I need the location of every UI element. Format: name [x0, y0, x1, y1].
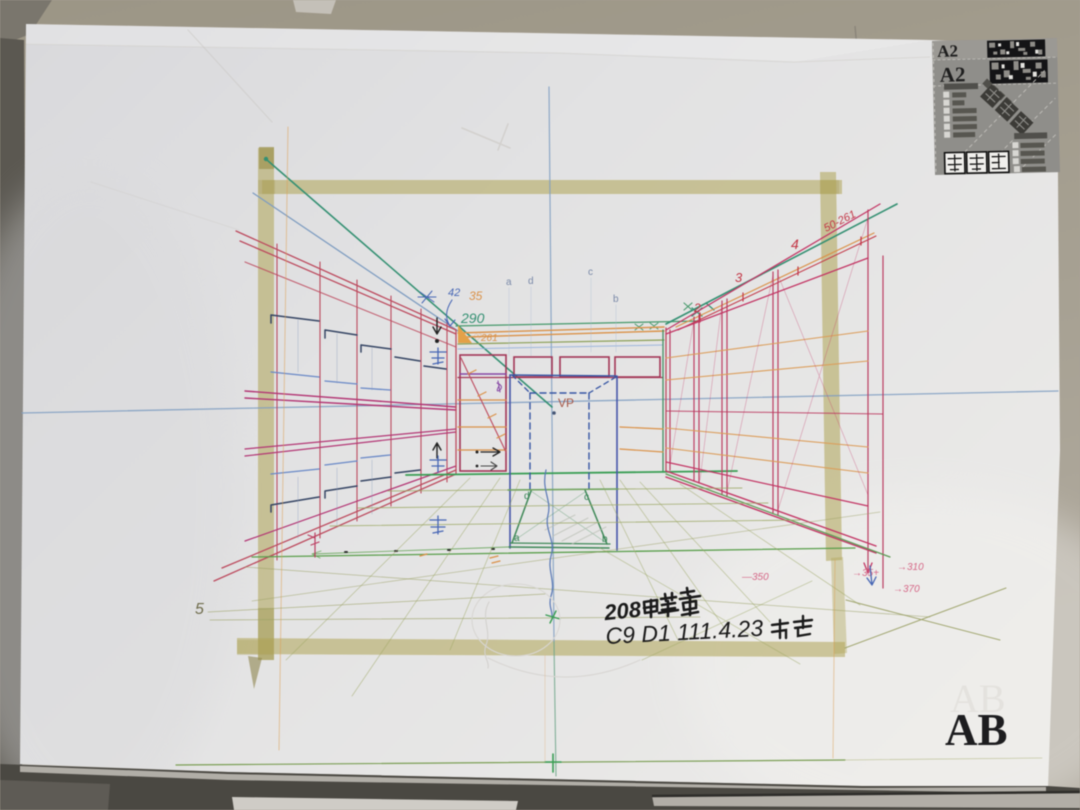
svg-text:→370: →370 [893, 584, 920, 595]
svg-text:→35+: →35+ [852, 568, 879, 579]
svg-text:b: b [613, 294, 619, 305]
svg-text:a: a [514, 533, 520, 544]
svg-text:d: d [524, 491, 530, 502]
svg-text:42: 42 [448, 287, 460, 299]
svg-text:VP: VP [558, 396, 574, 410]
svg-text:3: 3 [735, 270, 743, 285]
svg-text:a: a [506, 277, 512, 288]
svg-text:c: c [584, 492, 589, 503]
svg-text:b: b [602, 534, 608, 545]
svg-text:A2: A2 [937, 41, 958, 60]
svg-text:d: d [528, 276, 534, 287]
svg-text:c: c [588, 267, 593, 278]
svg-text:→310: →310 [897, 562, 924, 573]
svg-text:♡261: ♡261 [472, 333, 498, 344]
svg-text:AB: AB [945, 705, 1008, 755]
svg-text:—350: —350 [741, 572, 769, 583]
svg-text:4: 4 [791, 236, 799, 252]
svg-text:5: 5 [195, 601, 204, 618]
svg-text:35: 35 [469, 289, 483, 303]
svg-text:290: 290 [460, 310, 485, 326]
svg-text:A2: A2 [939, 62, 965, 87]
svg-text:2: 2 [693, 301, 701, 315]
